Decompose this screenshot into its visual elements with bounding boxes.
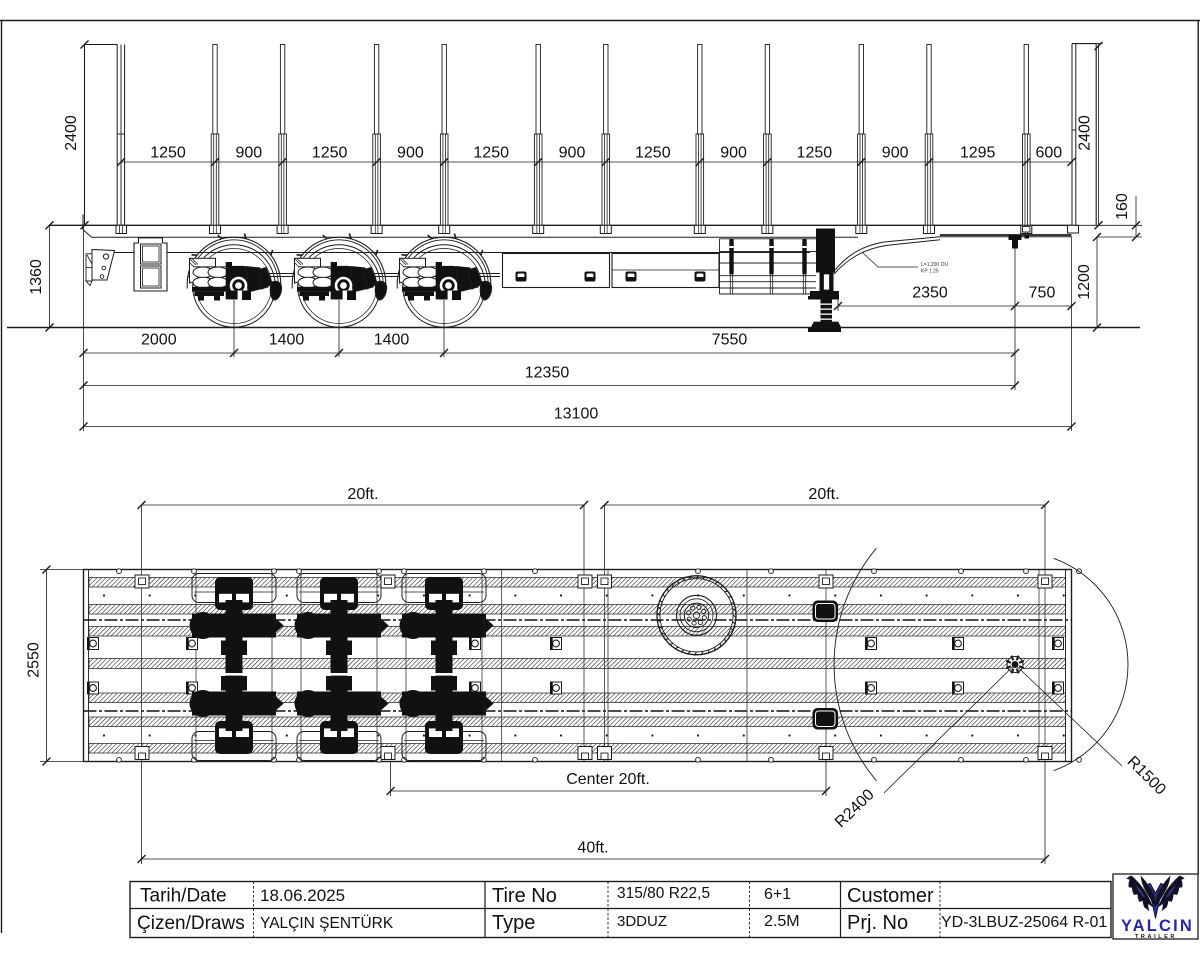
svg-text:Customer: Customer [847, 885, 934, 907]
svg-text:3DDUZ: 3DDUZ [617, 913, 667, 930]
svg-text:Tire No: Tire No [492, 885, 557, 907]
svg-text:1200: 1200 [1076, 264, 1093, 300]
svg-text:750: 750 [1029, 285, 1056, 302]
svg-text:Çizen/Draws: Çizen/Draws [137, 913, 245, 934]
svg-text:1250: 1250 [635, 145, 671, 162]
svg-text:1250: 1250 [797, 145, 833, 162]
svg-text:2.5M: 2.5M [764, 913, 800, 930]
svg-text:6+1: 6+1 [764, 886, 791, 903]
svg-text:900: 900 [235, 145, 262, 162]
svg-text:900: 900 [882, 145, 909, 162]
svg-text:1295: 1295 [960, 145, 996, 162]
svg-text:L=1.200 OU: L=1.200 OU [921, 262, 948, 268]
svg-text:1250: 1250 [150, 145, 186, 162]
svg-text:2350: 2350 [912, 285, 948, 302]
svg-text:2400: 2400 [1077, 115, 1094, 151]
svg-text:40ft.: 40ft. [577, 840, 608, 857]
svg-text:Tarih/Date: Tarih/Date [140, 886, 227, 907]
svg-text:YALÇIN ŞENTÜRK: YALÇIN ŞENTÜRK [260, 914, 394, 932]
svg-text:13100: 13100 [554, 406, 599, 423]
svg-text:900: 900 [397, 145, 424, 162]
svg-text:YALCIN: YALCIN [1121, 917, 1194, 935]
svg-text:900: 900 [720, 145, 747, 162]
svg-text:18.06.2025: 18.06.2025 [260, 886, 345, 905]
svg-text:Prj. No: Prj. No [847, 912, 908, 934]
svg-text:2400: 2400 [63, 115, 80, 151]
svg-text:Center 20ft.: Center 20ft. [566, 771, 650, 788]
svg-text:7550: 7550 [712, 332, 748, 349]
svg-text:Type: Type [492, 912, 535, 934]
svg-text:20ft.: 20ft. [347, 486, 378, 503]
svg-text:160: 160 [1114, 193, 1131, 220]
svg-text:2550: 2550 [26, 642, 43, 678]
svg-text:20ft.: 20ft. [808, 486, 839, 503]
svg-text:900: 900 [559, 145, 586, 162]
svg-text:1250: 1250 [473, 145, 509, 162]
svg-text:KP 1.25: KP 1.25 [921, 269, 939, 275]
svg-text:1400: 1400 [269, 332, 305, 349]
svg-text:12350: 12350 [525, 365, 570, 382]
svg-text:2000: 2000 [141, 332, 177, 349]
svg-text:600: 600 [1035, 145, 1062, 162]
svg-text:1250: 1250 [312, 145, 348, 162]
svg-text:1360: 1360 [28, 259, 45, 295]
svg-text:1400: 1400 [374, 332, 410, 349]
svg-text:315/80 R22,5: 315/80 R22,5 [617, 885, 710, 902]
svg-text:TRAILER: TRAILER [1135, 934, 1177, 940]
svg-text:YD-3LBUZ-25064 R-01: YD-3LBUZ-25064 R-01 [941, 914, 1107, 931]
